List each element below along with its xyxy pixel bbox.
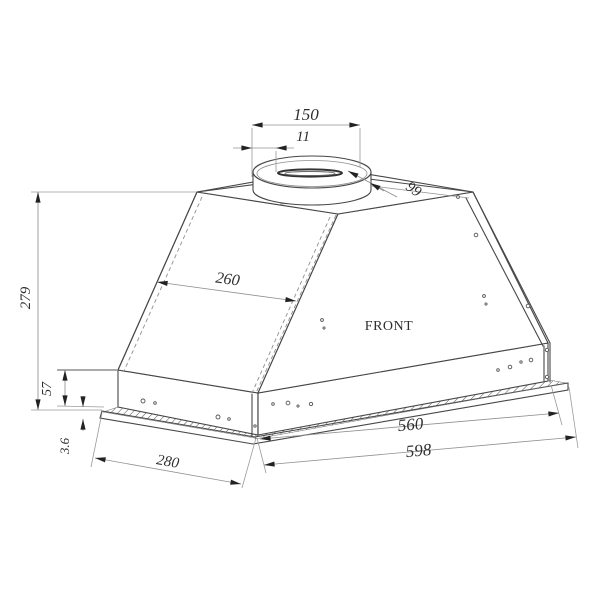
dim-11-label: 11 bbox=[296, 129, 310, 145]
front-face-label: FRONT bbox=[365, 319, 413, 334]
dim-260-label: 260 bbox=[215, 269, 241, 289]
dim-3-6: 3.6 bbox=[57, 396, 83, 455]
dim-57-label: 57 bbox=[40, 381, 55, 396]
dim-560-label: 560 bbox=[397, 414, 425, 435]
range-hood-diagram: 150 11 99 279 57 3.6 260 bbox=[0, 0, 600, 600]
dim-3-6-label: 3.6 bbox=[57, 437, 72, 455]
dim-598-label: 598 bbox=[405, 440, 433, 461]
dim-279-label: 279 bbox=[18, 286, 34, 309]
dim-150-label: 150 bbox=[293, 105, 319, 124]
technical-drawing-canvas: 150 11 99 279 57 3.6 260 bbox=[0, 0, 600, 600]
dim-57: 57 bbox=[40, 370, 117, 407]
duct-collar bbox=[253, 156, 371, 205]
